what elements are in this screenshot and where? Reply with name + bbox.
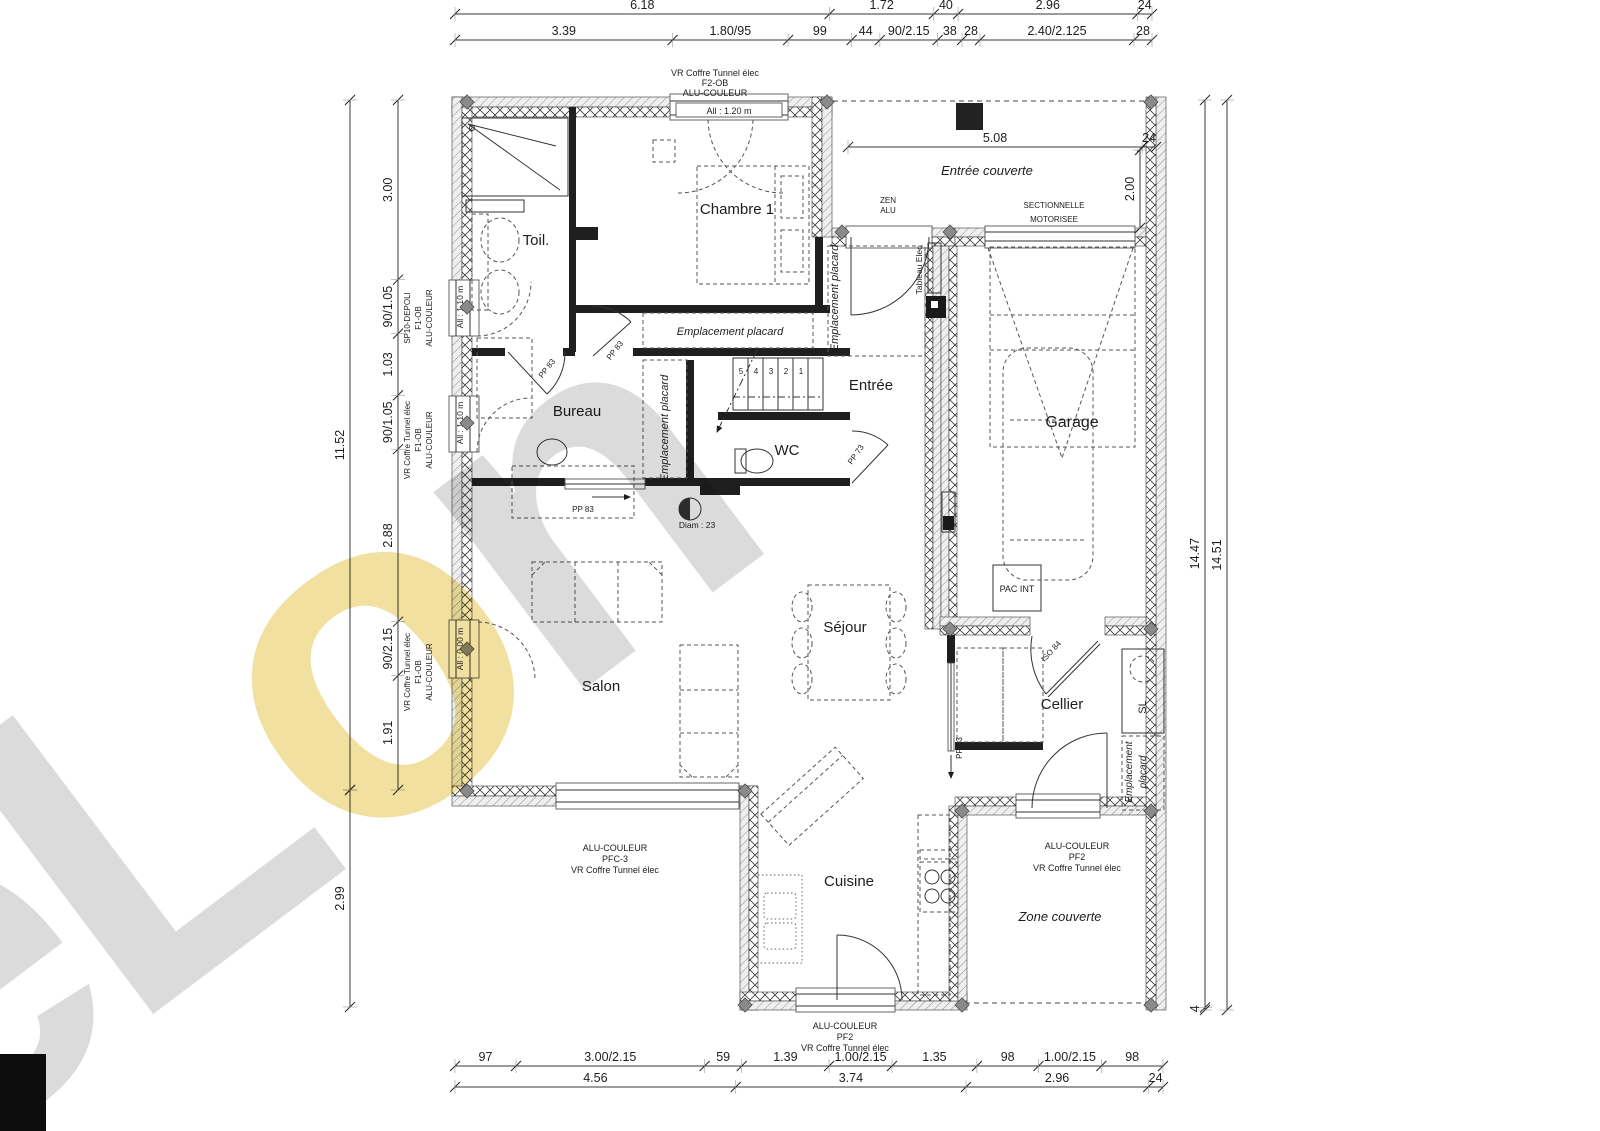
sl-label: SL [1137, 700, 1149, 713]
cellier-window-label: VR Coffre Tunnel élec [1033, 863, 1121, 873]
cellier-window-label: PF2 [1069, 852, 1086, 862]
south-window-label: VR Coffre Tunnel élec [571, 865, 659, 875]
placard-label: Emplacement [1124, 740, 1135, 802]
dim-label: 14.47 [1188, 538, 1202, 569]
dim-label: 4 [1188, 1005, 1202, 1012]
stair-number: 4 [754, 367, 759, 376]
south-window-label: ALU-COULEUR [583, 843, 648, 853]
stair-number: 3 [769, 367, 774, 376]
dim-label: 40 [939, 0, 953, 12]
dim-label: 97 [479, 1050, 493, 1064]
zen-alu-label: ALU [880, 206, 896, 215]
cellier-window-label: ALU-COULEUR [1045, 841, 1110, 851]
placard-label: Emplacement placard [677, 326, 784, 338]
cellier-shelves [957, 648, 1043, 742]
room-label-entree: Entrée [849, 377, 893, 394]
top-wall-label: VR Coffre Tunnel élec [671, 68, 759, 78]
dim-label: 59 [716, 1050, 730, 1064]
dim-label: 24 [1142, 131, 1156, 145]
zen-alu-label: ZEN [880, 196, 896, 205]
stair-number: 5 [739, 367, 744, 376]
dim-label: 4.56 [583, 1071, 607, 1085]
dim-label: 24 [1138, 0, 1152, 12]
dim-label: 3.00 [381, 178, 395, 202]
door-code-pp83: PP 83 [955, 737, 964, 759]
stair-number: 2 [784, 367, 789, 376]
dim-label: 98 [1001, 1050, 1015, 1064]
dim-label: 2.96 [1045, 1071, 1069, 1085]
kitchen-counters [758, 815, 958, 995]
window-sill-label: All : 1.20 m [706, 106, 751, 116]
pac-int-label: PAC INT [1000, 584, 1035, 594]
south-door-label: ALU-COULEUR [813, 1021, 878, 1031]
dim-label: 14.51 [1210, 539, 1224, 570]
stair-number: 1 [799, 367, 804, 376]
dim-label: 6.18 [630, 0, 654, 12]
dim-label: 90/2.15 [888, 24, 930, 38]
porch-pillar [956, 103, 983, 130]
dim-label: 3.00/2.15 [584, 1050, 636, 1064]
south-window-label: PFC-3 [602, 854, 628, 864]
dim-label: 1.00/2.15 [1044, 1050, 1096, 1064]
room-label-entree-couverte: Entrée couverte [941, 163, 1033, 178]
dim-label: 38 [943, 24, 957, 38]
tableau-elec-label: Tableau Elec [914, 245, 924, 294]
south-door-label: PF2 [837, 1032, 854, 1042]
wc-toilet [735, 449, 773, 473]
dim-label: 1.39 [773, 1050, 797, 1064]
dim-label: 1.35 [922, 1050, 946, 1064]
floor-plan-page: VR Coffre Tunnel élec F2-OB ALU-COULEUR … [0, 0, 1600, 1131]
room-label-wc: WC [775, 442, 800, 459]
dim-label: 3.39 [552, 24, 576, 38]
dim-label: 1.80/95 [709, 24, 751, 38]
dim-label: 2.40/2.125 [1027, 24, 1086, 38]
dim-label: 5.08 [983, 131, 1007, 145]
watermark: BeLon [0, 208, 833, 1131]
room-label-cellier: Cellier [1041, 696, 1084, 713]
dim-label: 44 [859, 24, 873, 38]
dim-label: 28 [964, 24, 978, 38]
room-label-garage: Garage [1045, 414, 1098, 431]
placard-label: placard [1138, 755, 1149, 789]
page-corner-block [0, 1054, 46, 1131]
sectionnelle-label: SECTIONNELLE [1024, 201, 1085, 210]
top-wall-label: ALU-COULEUR [683, 88, 748, 98]
dim-label: 98 [1125, 1050, 1139, 1064]
sectionnelle-label: MOTORISEE [1030, 215, 1078, 224]
room-label-cuisine: Cuisine [824, 873, 874, 890]
floor-plan-drawing: VR Coffre Tunnel élec F2-OB ALU-COULEUR … [0, 0, 1600, 1131]
dim-label: 28 [1136, 24, 1150, 38]
dim-label: 2.00 [1123, 177, 1137, 201]
door-code-pp73: PP 73 [846, 443, 866, 466]
room-label-chambre1: Chambre 1 [700, 201, 774, 218]
dim-label: 99 [813, 24, 827, 38]
dim-label: 24 [1149, 1071, 1163, 1085]
placard-label: Emplacement placard [829, 244, 841, 351]
room-label-zone-couverte: Zone couverte [1017, 909, 1101, 924]
top-wall-label: F2-OB [702, 78, 729, 88]
shower [462, 118, 568, 212]
dim-label: 1.72 [870, 0, 894, 12]
dim-label: 3.74 [839, 1071, 863, 1085]
dim-label: 1.00/2.15 [834, 1050, 886, 1064]
sideboard [761, 747, 863, 845]
dim-label: 2.96 [1036, 0, 1060, 12]
